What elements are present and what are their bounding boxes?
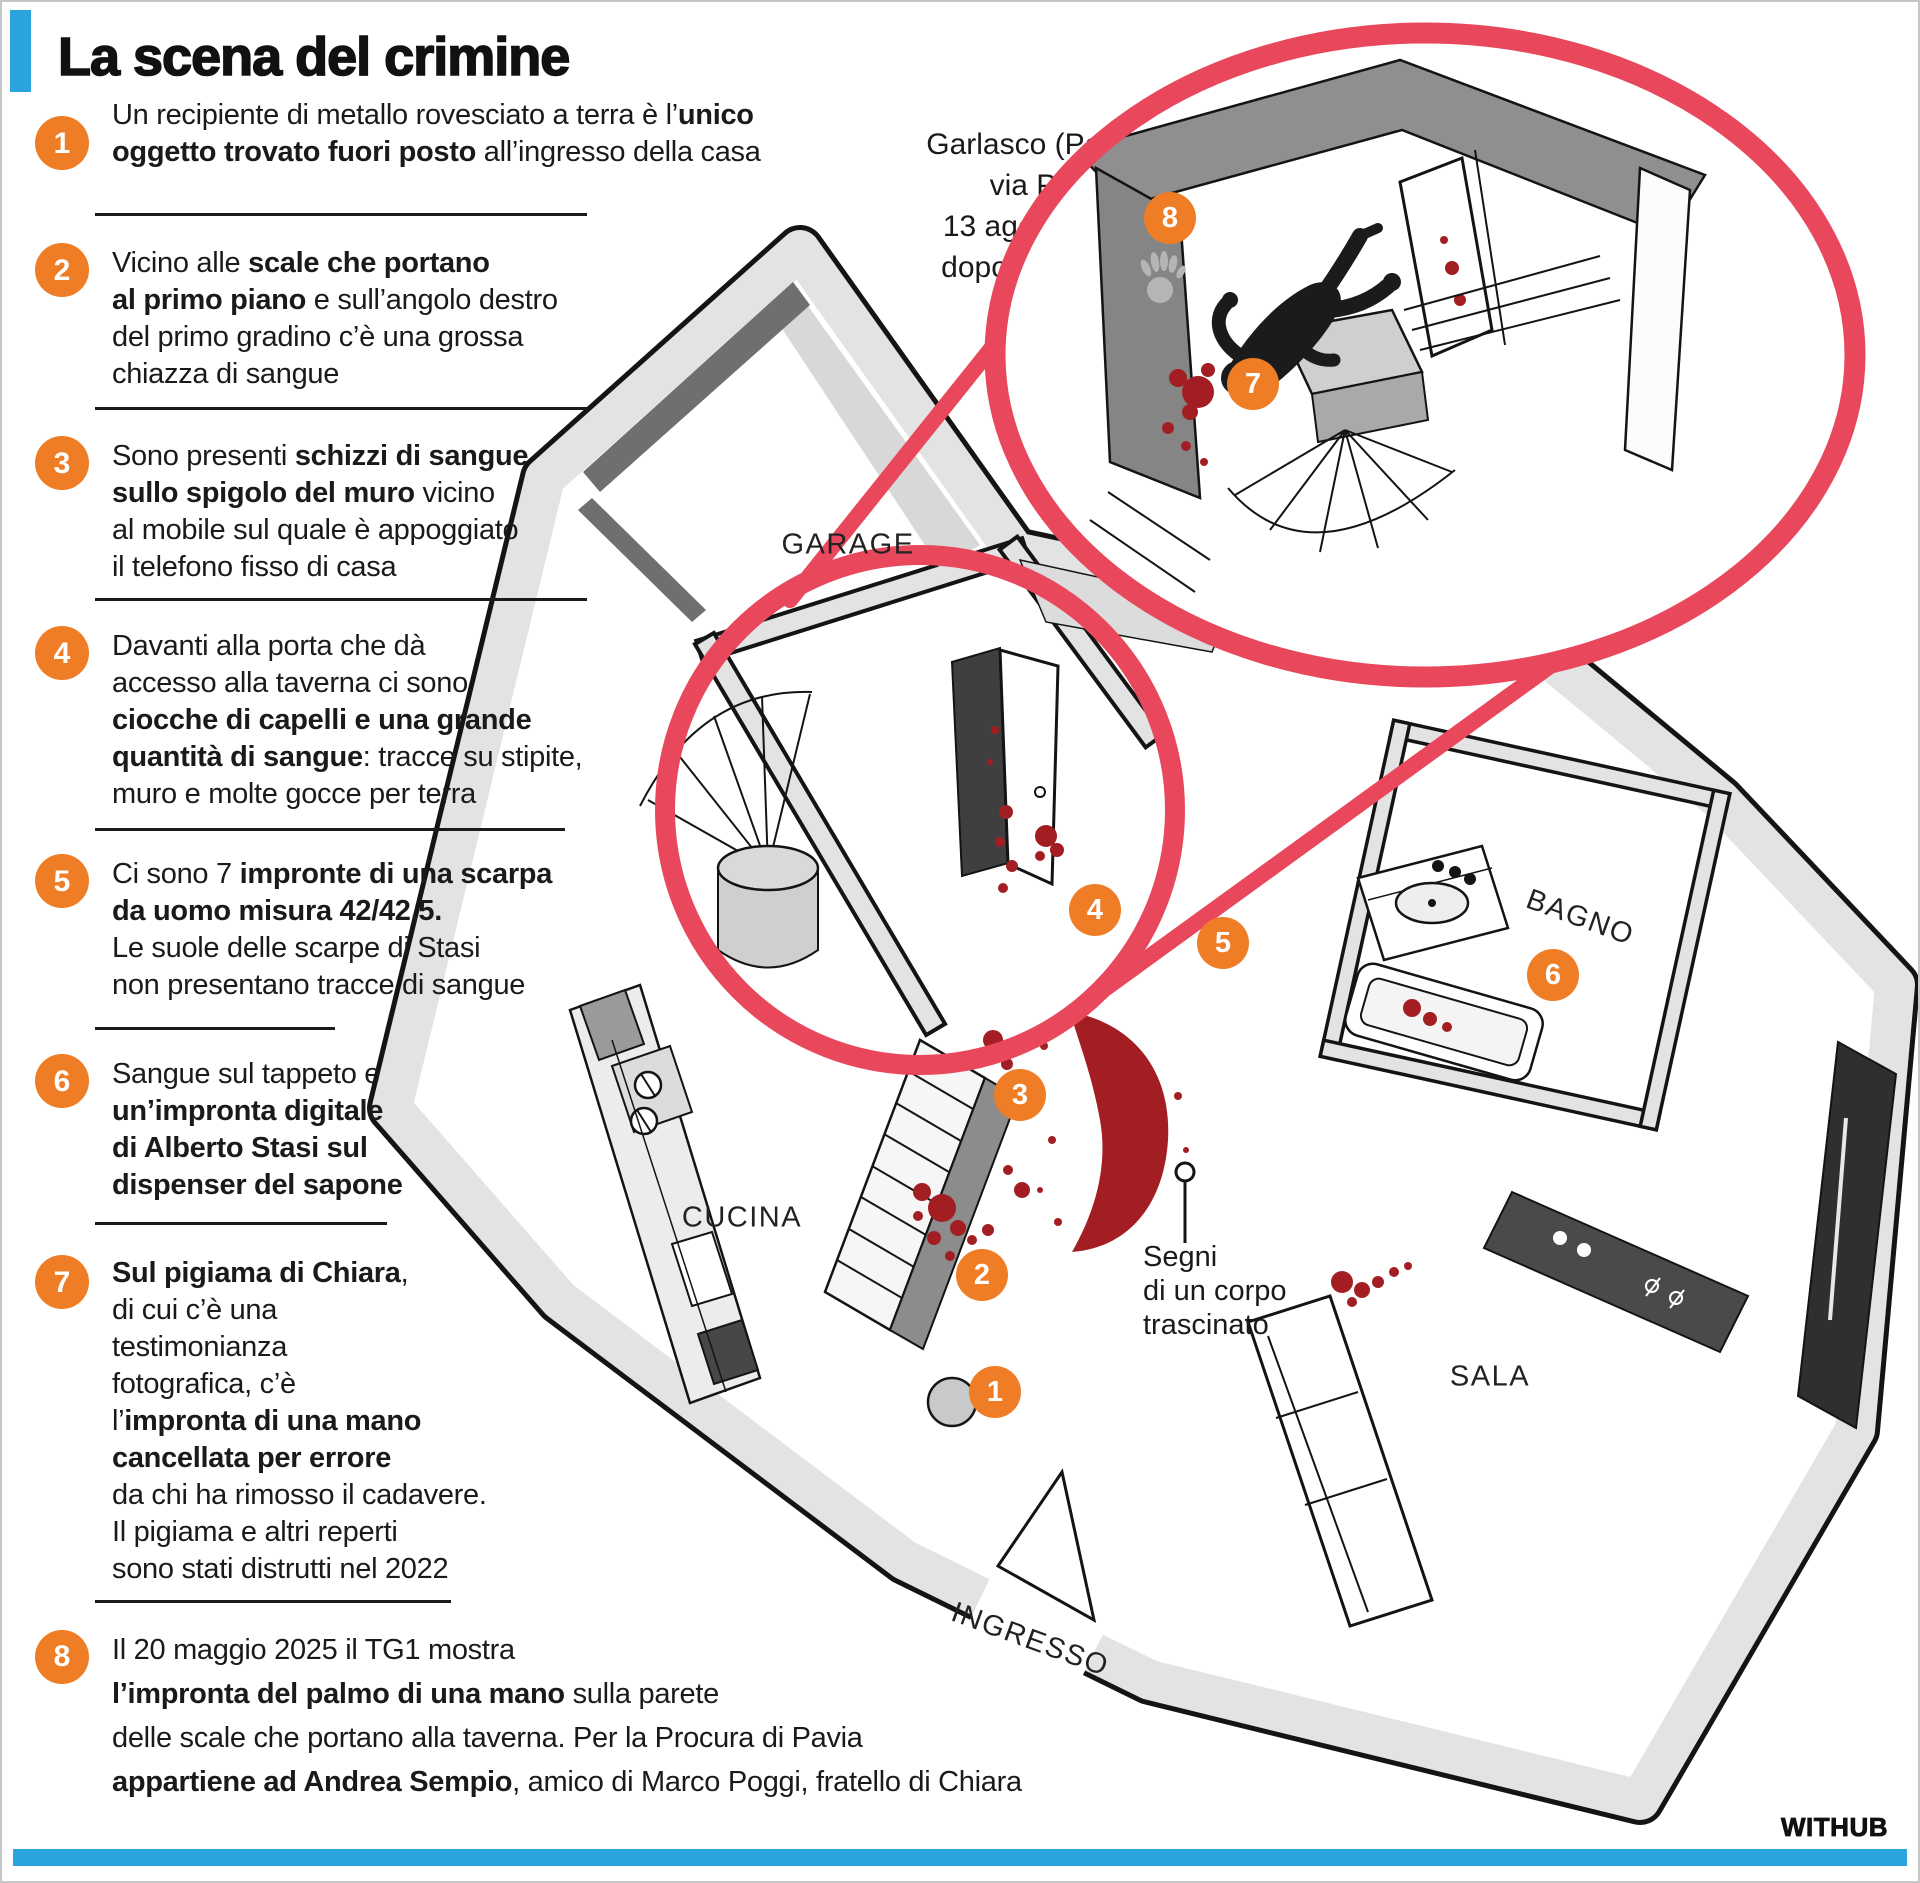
note-item-6: 6 Sangue sul tappeto eun’impronta digita…: [112, 1056, 403, 1204]
note-separator: [95, 598, 587, 601]
plan-marker-5: 5: [1197, 917, 1249, 969]
plan-marker-7: 7: [1227, 358, 1279, 410]
note-badge-8: 8: [35, 1630, 89, 1684]
plan-marker-6: 6: [1527, 949, 1579, 1001]
magnifier-big-circle: [995, 33, 1855, 677]
room-label-sala: SALA: [1450, 1361, 1530, 1394]
note-separator: [95, 1600, 451, 1603]
note-item-4: 4 Davanti alla porta che dàaccesso alla …: [112, 628, 582, 813]
note-separator: [95, 407, 587, 410]
note-separator: [95, 213, 587, 216]
note-item-5: 5 Ci sono 7 impronte di una scarpada uom…: [112, 856, 552, 1004]
note-item-8: 8 Il 20 maggio 2025 il TG1 mostral’impro…: [112, 1628, 1022, 1804]
room-label-cucina: CUCINA: [682, 1202, 802, 1235]
footer-bar: [13, 1849, 1907, 1866]
note-item-2: 2 Vicino alle scale che portanoal primo …: [112, 245, 558, 393]
plan-marker-1: 1: [969, 1366, 1021, 1418]
brand-logo: WITHUB: [1781, 1812, 1888, 1843]
plan-marker-8: 8: [1144, 192, 1196, 244]
note-item-1: 1 Un recipiente di metallo rovesciato a …: [112, 97, 761, 171]
note-separator: [95, 828, 565, 831]
note-badge-6: 6: [35, 1054, 89, 1108]
note-badge-4: 4: [35, 626, 89, 680]
note-item-7: 7 Sul pigiama di Chiara,di cui c’è unate…: [112, 1255, 487, 1588]
note-badge-7: 7: [35, 1255, 89, 1309]
note-item-3: 3 Sono presenti schizzi di sanguesullo s…: [112, 438, 528, 586]
taverna-door: [952, 648, 1058, 884]
plan-marker-2: 2: [956, 1249, 1008, 1301]
note-badge-3: 3: [35, 436, 89, 490]
room-label-garage: GARAGE: [781, 529, 914, 562]
note-separator: [95, 1027, 335, 1030]
drag-callout-text: Segni di un corpo trascinato: [1143, 1240, 1287, 1342]
note-badge-2: 2: [35, 243, 89, 297]
plan-marker-4: 4: [1069, 884, 1121, 936]
note-badge-5: 5: [35, 854, 89, 908]
note-separator: [95, 1222, 387, 1225]
infographic-canvas: La scena del crimine Garlasco (Pavia), v…: [0, 0, 1920, 1883]
note-badge-1: 1: [35, 116, 89, 170]
plan-marker-3: 3: [994, 1069, 1046, 1121]
